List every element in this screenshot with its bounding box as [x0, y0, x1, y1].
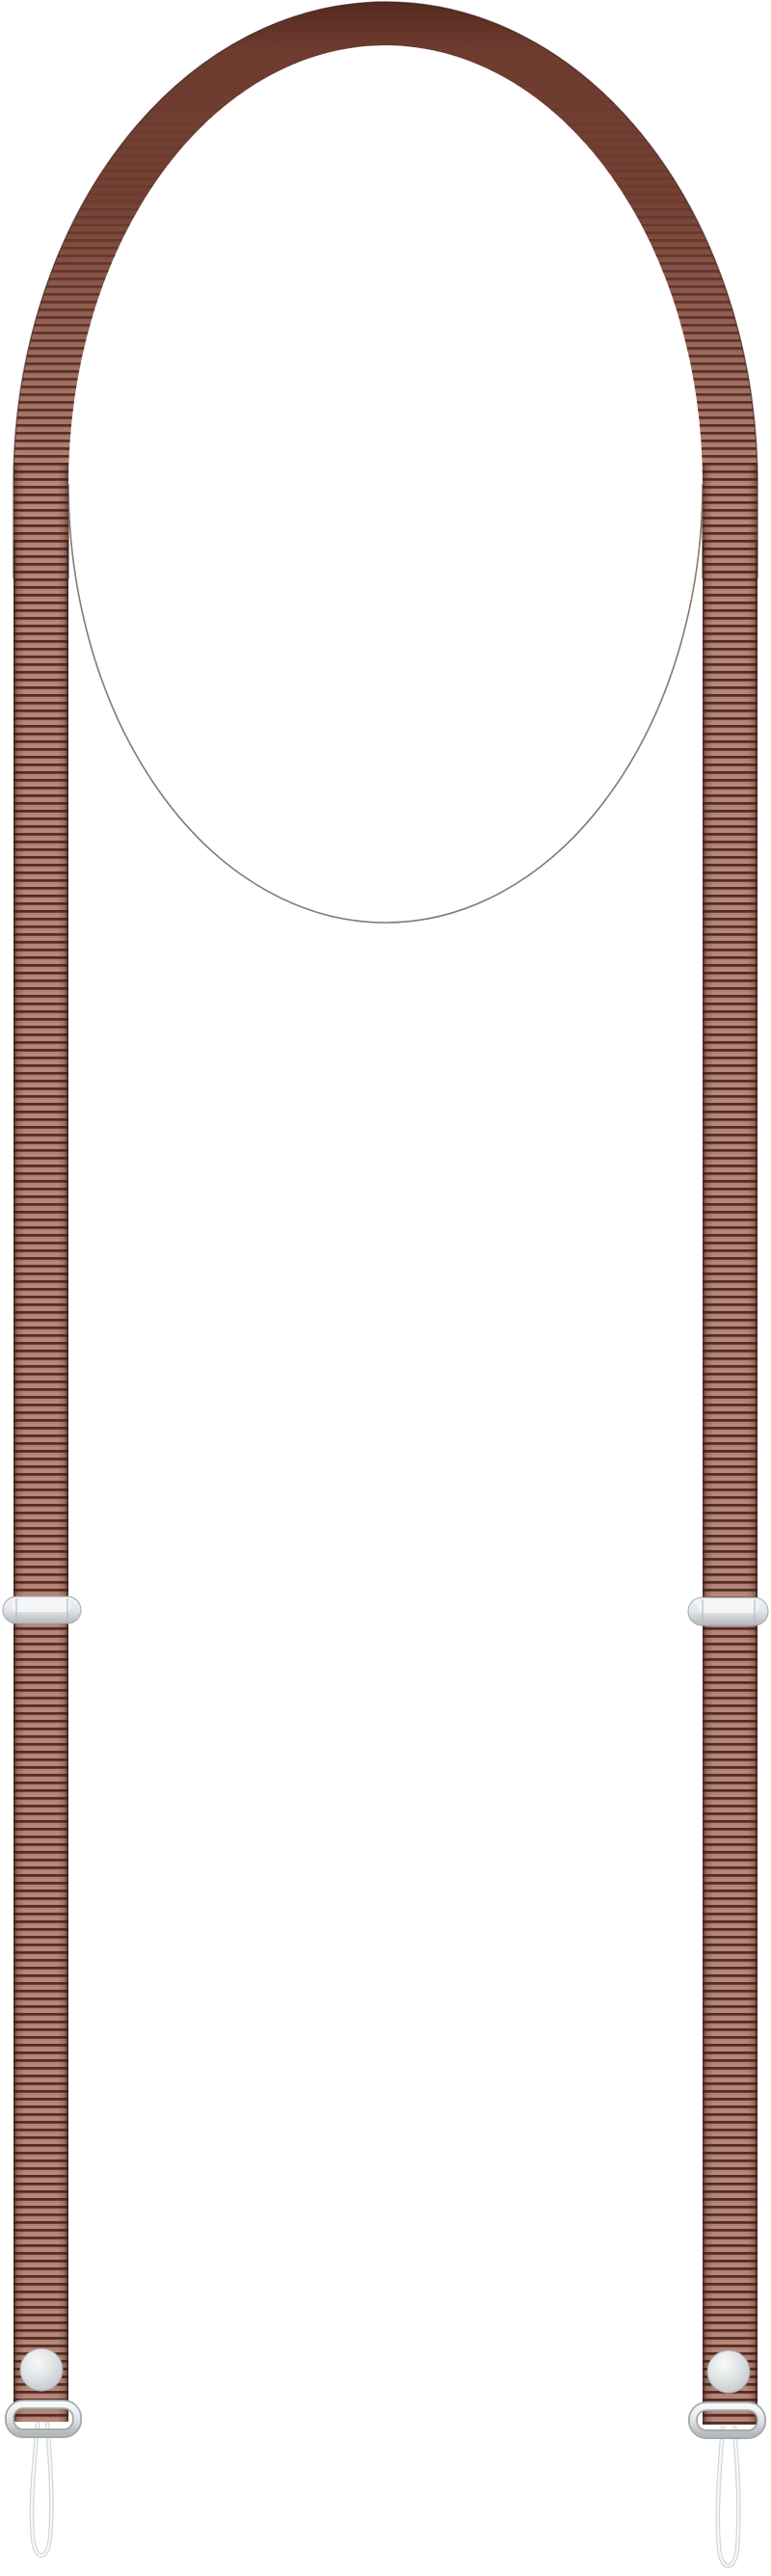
- right-strap: [703, 463, 758, 2425]
- left-adjuster-highlight: [12, 1600, 71, 1612]
- left-strap-edge-shading: [13, 463, 68, 2422]
- right-snap-button: [707, 2350, 750, 2393]
- left-adjuster: [3, 1597, 81, 1623]
- strap-photo: [0, 0, 771, 2576]
- background: [0, 0, 771, 2576]
- right-adjuster-highlight: [698, 1601, 758, 1613]
- left-snap-button: [20, 2348, 63, 2391]
- right-strap-edge-shading: [703, 463, 758, 2425]
- product-image: [0, 0, 771, 2576]
- left-strap: [13, 463, 68, 2422]
- right-adjuster: [688, 1597, 768, 1625]
